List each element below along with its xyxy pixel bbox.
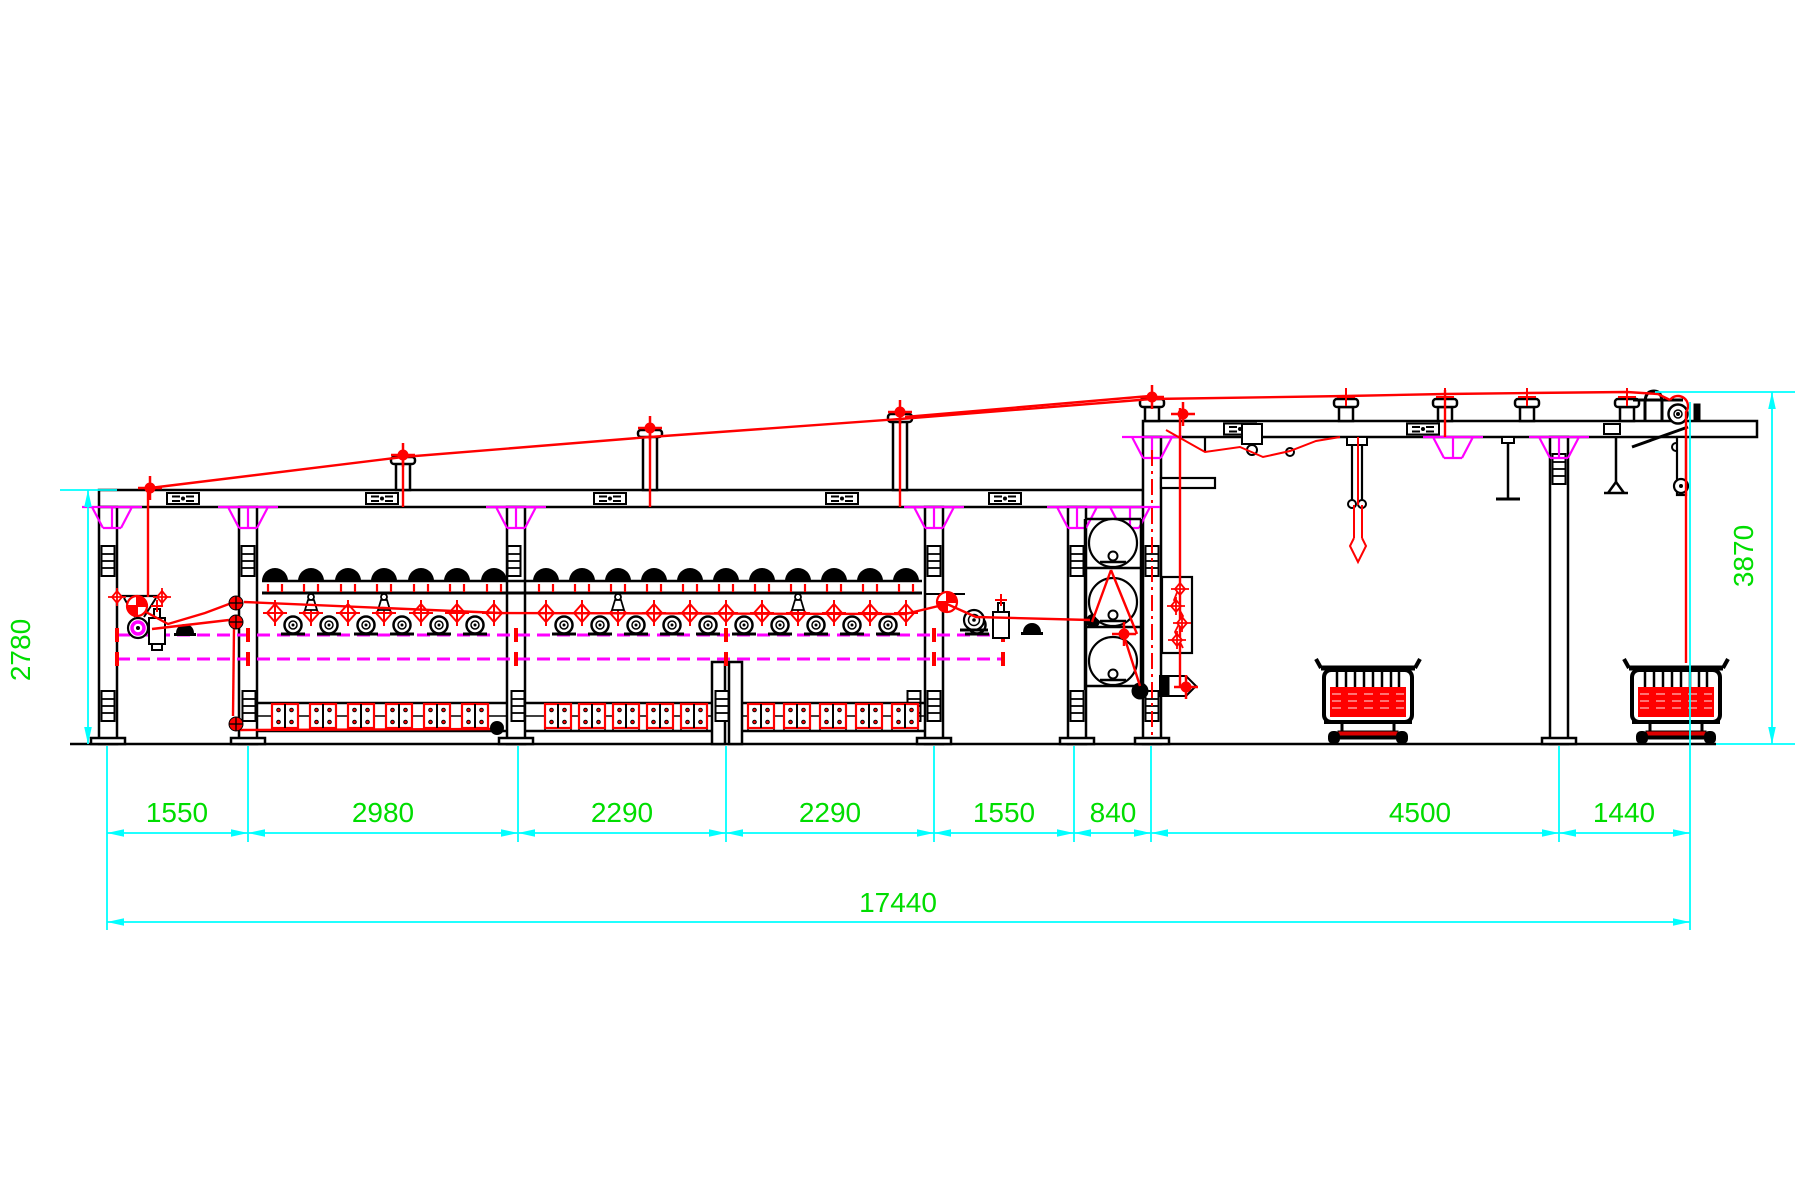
dim-label-seg4: 2290	[799, 797, 861, 828]
dim-label-seg5: 1550	[973, 797, 1035, 828]
dim-label-seg3: 2290	[591, 797, 653, 828]
creel-rows	[257, 702, 925, 731]
yarn-path	[146, 390, 1688, 738]
spindle-hump-row	[262, 568, 922, 593]
dim-label-seg7: 4500	[1389, 797, 1451, 828]
guide-posts-right-beam	[1140, 399, 1639, 421]
rope-end-pulley	[490, 721, 504, 735]
dim-label-seg8: 1440	[1593, 797, 1655, 828]
dim-label-seg1: 1550	[146, 797, 208, 828]
dim-label-right-height: 3870	[1728, 525, 1759, 587]
dim-label-left-height: 2780	[5, 619, 36, 681]
basket-left	[1316, 659, 1420, 744]
dim-label-seg2: 2980	[352, 797, 414, 828]
machine-line-drawing: 1550 2980 2290 2290 1550 840 4500 1440 1…	[0, 0, 1800, 1200]
dim-label-seg6: 840	[1090, 797, 1137, 828]
dim-label-total: 17440	[859, 887, 937, 918]
cad-sheet: 1550 2980 2290 2290 1550 840 4500 1440 1…	[0, 0, 1800, 1200]
basket-right	[1624, 659, 1728, 744]
